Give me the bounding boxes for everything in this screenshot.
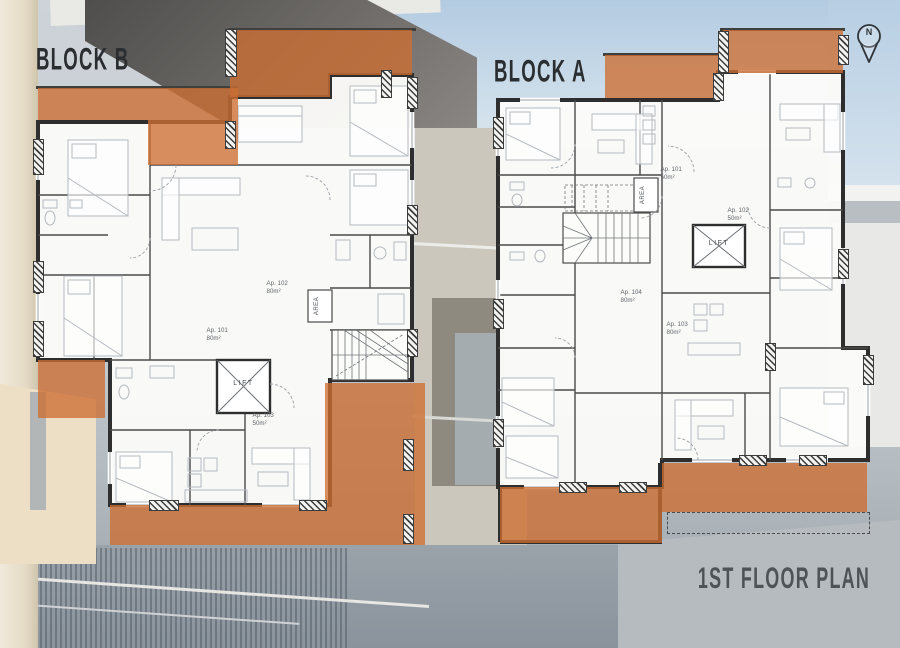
page-title: 1ST FLOOR PLAN xyxy=(698,562,870,596)
area-shaft-label-b: AREA xyxy=(314,286,326,326)
area-shaft-label-a: AREA xyxy=(640,175,652,215)
wall-hatch xyxy=(740,456,766,465)
wall-hatch xyxy=(864,356,873,384)
apartment-area: 80m² xyxy=(667,329,688,337)
apartment-id: Ap. 103 xyxy=(667,321,688,329)
wall-hatch xyxy=(34,262,43,292)
wall-hatch xyxy=(494,300,503,328)
wall-hatch xyxy=(34,140,43,174)
balcony-overlay xyxy=(723,30,843,73)
wall-hatch xyxy=(226,122,235,148)
floor-plan-page: Ap. 101 80m² Ap. 102 80m² Ap. 103 50m² L… xyxy=(0,0,900,648)
wall-hatch xyxy=(766,344,775,370)
wall-hatch xyxy=(404,515,413,543)
wall-hatch xyxy=(34,322,43,356)
wall-hatch xyxy=(494,118,503,148)
apartment-label-a103: Ap. 103 80m² xyxy=(667,321,688,337)
wall-hatch xyxy=(719,32,728,72)
apartment-id: Ap. 104 xyxy=(621,289,642,297)
wall-hatch xyxy=(382,71,391,97)
apartment-area: 50m² xyxy=(728,215,749,223)
wall-hatch xyxy=(560,483,586,492)
apartment-id: Ap. 101 xyxy=(661,166,682,174)
apartment-id: Ap. 103 xyxy=(253,412,274,420)
wall-hatch xyxy=(839,36,848,64)
balcony-overlay xyxy=(662,463,867,512)
wall-hatch xyxy=(408,206,417,234)
balcony-overlay xyxy=(330,30,412,75)
apartment-label-b101: Ap. 101 80m² xyxy=(207,327,228,343)
apartment-id: Ap. 102 xyxy=(728,207,749,215)
apartment-id: Ap. 101 xyxy=(207,327,228,335)
block-b-title: BLOCK B xyxy=(36,42,129,78)
apartment-area: 80m² xyxy=(207,335,228,343)
block-a-title: BLOCK A xyxy=(494,54,587,90)
balcony-overlay xyxy=(605,55,718,98)
wall-hatch xyxy=(800,456,826,465)
north-label: N xyxy=(852,27,886,37)
wall-hatch xyxy=(226,30,236,76)
balcony-overlay xyxy=(110,505,325,545)
balcony-overlay xyxy=(148,88,238,165)
balcony-overlay xyxy=(38,88,148,120)
wall-hatch xyxy=(494,420,503,446)
wall-hatch xyxy=(408,78,417,108)
wall-hatch xyxy=(404,440,413,470)
apartment-id: Ap. 102 xyxy=(267,280,288,288)
balcony-overlay xyxy=(500,487,662,543)
wall-hatch xyxy=(714,74,723,100)
north-indicator: N xyxy=(852,22,886,66)
wall-hatch xyxy=(839,250,848,278)
balcony-overlay xyxy=(38,360,105,418)
apartment-area: 80m² xyxy=(267,288,288,296)
wall-hatch xyxy=(150,501,178,510)
apartment-label-a101: Ap. 101 50m² xyxy=(661,166,682,182)
wall-hatch xyxy=(408,330,417,356)
wall-hatch xyxy=(620,483,646,492)
apartment-area: 80m² xyxy=(621,297,642,305)
apartment-area: 50m² xyxy=(661,174,682,182)
lift-label-a: LIFT xyxy=(693,240,745,247)
lift-label-b: LIFT xyxy=(217,380,270,387)
apartment-label-b102: Ap. 102 80m² xyxy=(267,280,288,296)
apartment-area: 50m² xyxy=(253,420,274,428)
apartment-label-a102: Ap. 102 50m² xyxy=(728,207,749,223)
wall-hatch xyxy=(300,501,326,510)
apartment-label-a104: Ap. 104 80m² xyxy=(621,289,642,305)
apartment-label-b103: Ap. 103 50m² xyxy=(253,412,274,428)
balcony-overlay xyxy=(230,30,330,97)
balcony-projection-outline xyxy=(667,512,870,534)
